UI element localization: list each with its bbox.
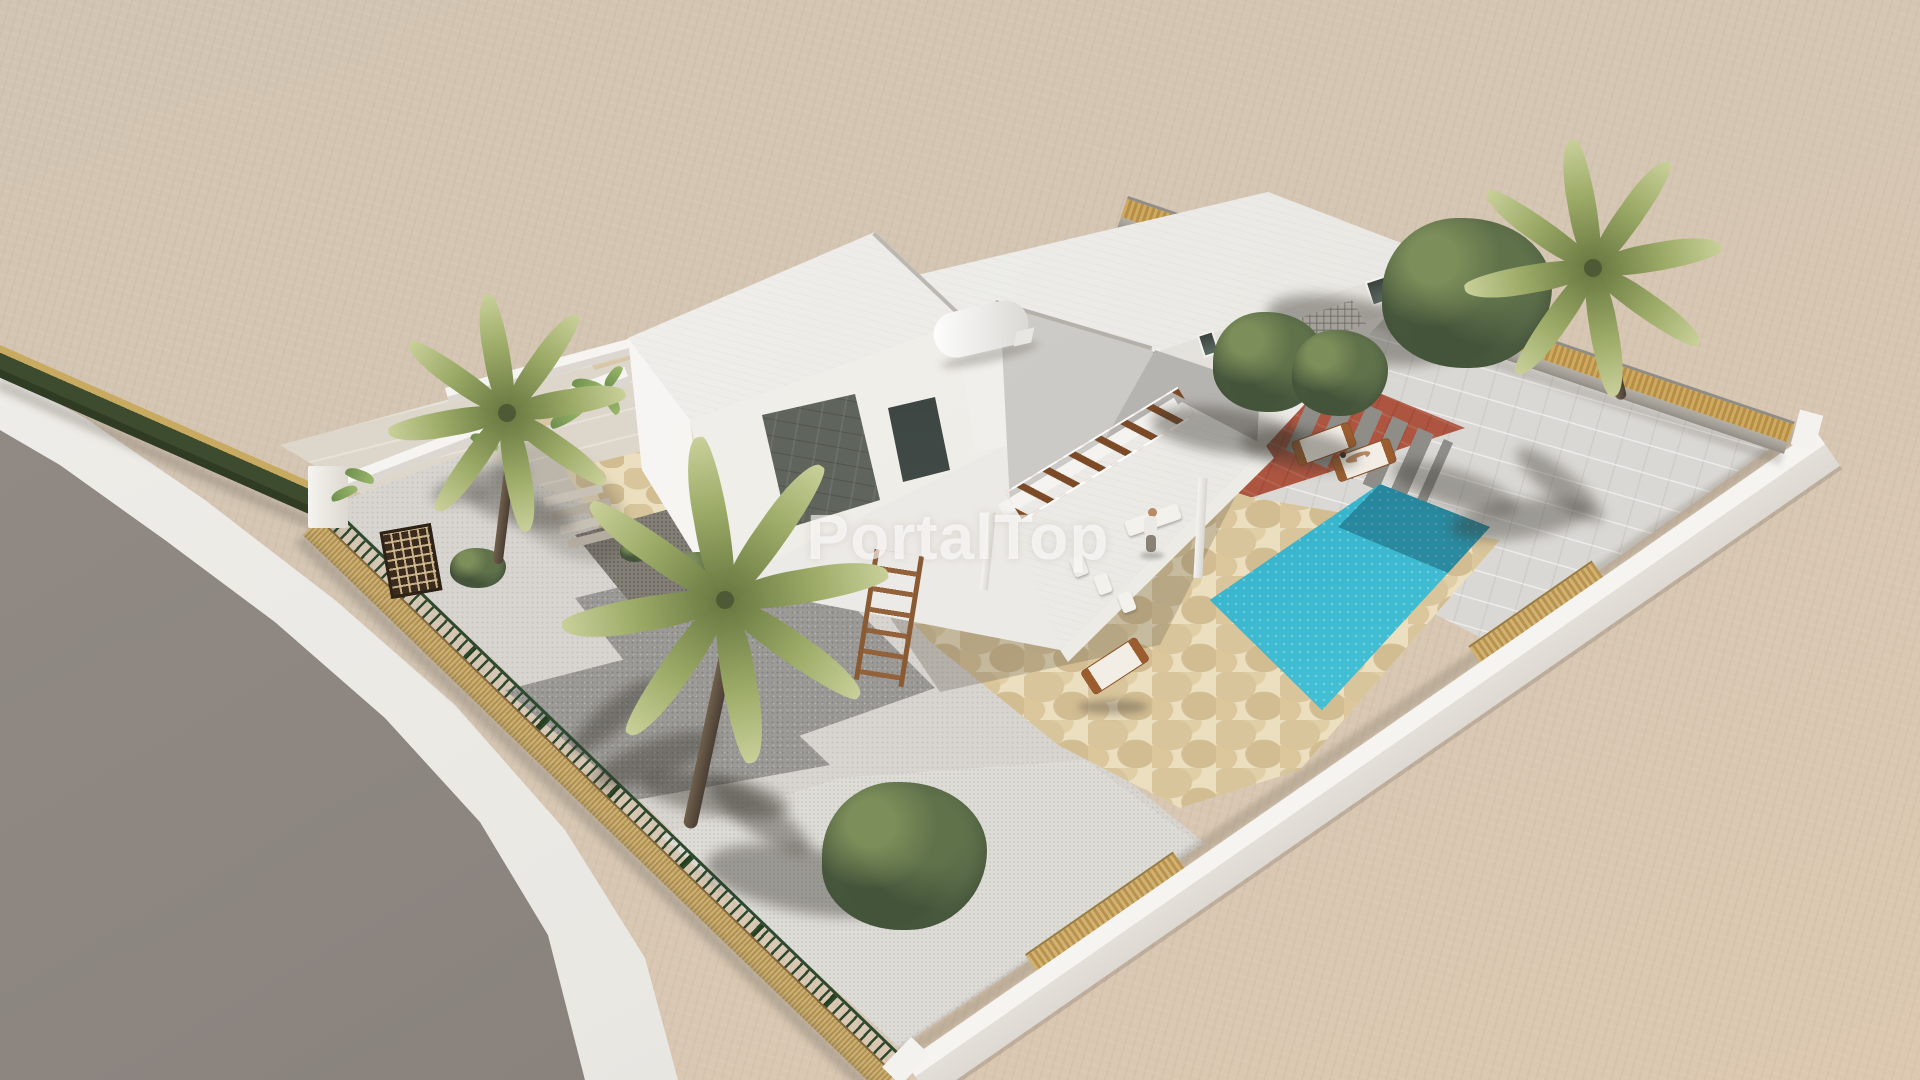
watermark-text: PortalTop: [807, 500, 1110, 574]
person-legs: [1146, 535, 1156, 552]
tree: [1292, 330, 1388, 416]
aerial-villa-render: PortalTop: [0, 0, 1920, 1080]
tree: [822, 782, 987, 930]
person-torso: [1144, 516, 1157, 536]
person-standing: [1142, 508, 1168, 560]
lounger-shadow: [1078, 700, 1148, 714]
person-shadow: [1140, 552, 1164, 559]
